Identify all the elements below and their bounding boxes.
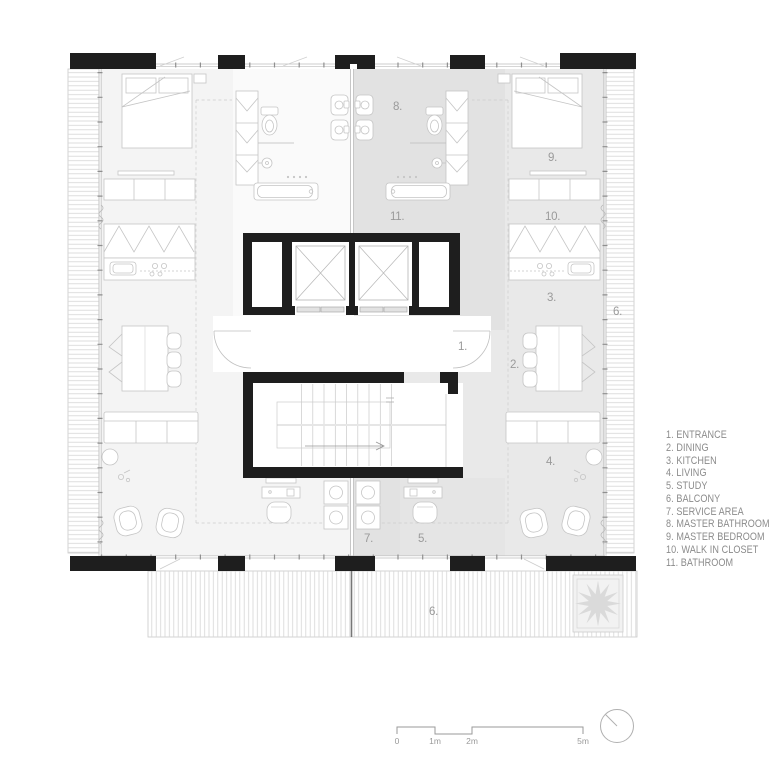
planter [573, 575, 623, 632]
room-label-kitchen: 3. [547, 292, 556, 304]
legend-item: 6. BALCONY [666, 493, 770, 506]
room-label-study: 5. [418, 533, 427, 545]
legend: 1. ENTRANCE 2. DINING 3. KITCHEN 4. LIVI… [666, 429, 770, 569]
legend-item: 11. BATHROOM [666, 557, 770, 570]
scale-label-0: 0 [395, 736, 400, 746]
scale-label-5m: 5m [577, 736, 589, 746]
scale-bar: 0 1m 2m 5m [395, 727, 589, 746]
room-label-entrance: 1. [458, 341, 467, 353]
floor-plan-drawing: 1. 2. 3. 4. 5. 6. 6. 7. 8. 9. 10. 11. 0 … [0, 0, 780, 780]
north-needle [606, 715, 618, 727]
balcony-bottom [148, 571, 637, 637]
room-label-service-area: 7. [364, 533, 373, 545]
scale-label-2m: 2m [466, 736, 478, 746]
north-indicator [601, 710, 634, 743]
elevator-cab [292, 242, 349, 306]
service-shaft [252, 242, 282, 307]
legend-item: 7. SERVICE AREA [666, 506, 770, 519]
legend-item: 2. DINING [666, 442, 770, 455]
legend-item: 5. STUDY [666, 480, 770, 493]
room-label-dining: 2. [510, 359, 519, 371]
legend-item: 3. KITCHEN [666, 455, 770, 468]
service-shaft [419, 242, 449, 307]
scale-label-1m: 1m [429, 736, 441, 746]
legend-item: 1. ENTRANCE [666, 429, 770, 442]
lobby-floor [213, 316, 491, 372]
elevator-core [243, 233, 460, 315]
room-label-master-bathroom: 8. [393, 101, 402, 113]
room-label-master-bedroom: 9. [548, 152, 557, 164]
legend-item: 9. MASTER BEDROOM [666, 531, 770, 544]
room-label-bathroom: 11. [390, 211, 404, 223]
elevator-cab [355, 242, 412, 306]
balcony-left [68, 69, 99, 553]
legend-item: 10. WALK IN CLOSET [666, 544, 770, 557]
room-label-living: 4. [546, 456, 555, 468]
room-label-balcony-right: 6. [613, 306, 622, 318]
stair-core [243, 372, 463, 478]
legend-item: 8. MASTER BATHROOM [666, 518, 770, 531]
room-label-balcony-bottom: 6. [429, 606, 438, 618]
column-notch [350, 64, 357, 69]
legend-item: 4. LIVING [666, 467, 770, 480]
room-label-walk-in-closet: 10. [545, 211, 560, 223]
